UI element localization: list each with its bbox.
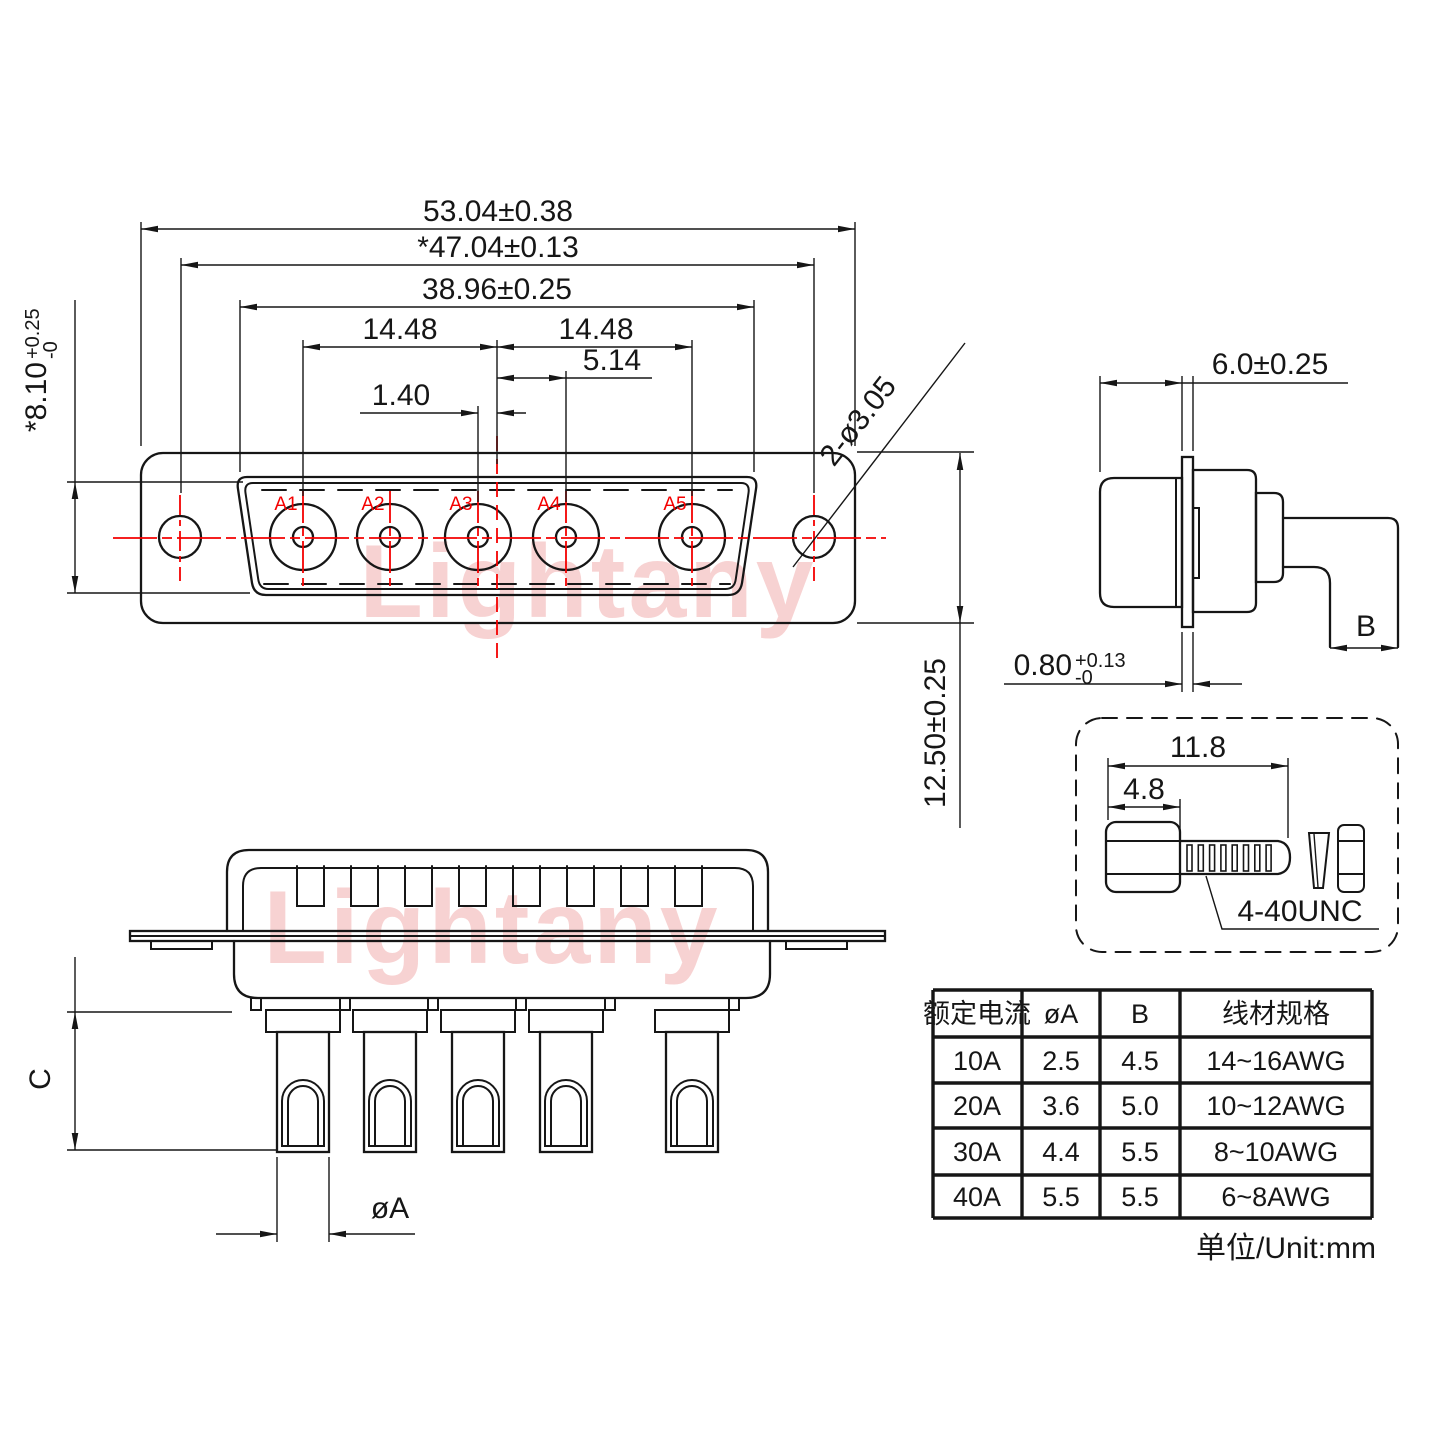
dim-pitch-left: 14.48 [362,313,437,346]
svg-text:40A: 40A [953,1182,1001,1212]
dim-shell-width: 38.96±0.25 [422,273,572,306]
thumbscrew-shaft [1180,841,1290,874]
side-mounting-plate [1182,457,1193,627]
svg-text:20A: 20A [953,1091,1001,1121]
pin-label-a2: A2 [361,494,384,515]
solder-cup-pins [277,1032,718,1152]
svg-text:14~16AWG: 14~16AWG [1206,1046,1345,1076]
spec-table: 额定电流 øA B 线材规格 10A 2.5 4.5 14~16AWG 20A … [923,990,1376,1265]
side-back-body [1193,470,1256,612]
dim-pin-length: C [24,957,277,1150]
connector-drawing-canvas: Lightany Lightany [0,0,1440,1440]
side-wire-outer [1283,518,1398,647]
dim-a3-offset: 1.40 [372,379,430,412]
front-view: A1 A2 A3 A4 A5 53.04±0.38 *47.04±0.13 38… [20,195,974,828]
dim-mount-holes: 2-ø3.05 [813,370,903,472]
body-pegs [251,998,739,1010]
svg-text:4.5: 4.5 [1121,1046,1159,1076]
dim-overall-width: 53.04±0.38 [423,195,573,228]
header-wire-gauge: 线材规格 [1222,999,1330,1029]
dim-hole-span: *47.04±0.13 [417,231,579,264]
svg-text:*8.10: *8.10 [20,362,53,432]
thread-lines [1187,845,1271,871]
header-rated-current: 额定电流 [923,999,1031,1029]
dim-screw-total: 11.8 [1170,731,1226,764]
engineering-drawing-page: Lightany Lightany [0,0,1440,1440]
svg-text:30A: 30A [953,1137,1001,1167]
table-header-row: 额定电流 øA B 线材规格 [923,999,1330,1029]
pin-label-a4: A4 [537,494,561,515]
front-dimensions: 53.04±0.38 *47.04±0.13 38.96±0.25 14.48 … [20,195,965,828]
header-b: B [1131,999,1149,1029]
pin-shoulders [266,1010,729,1032]
wedge-part [1309,833,1329,888]
dim-pin-diameter: øA [216,1157,415,1242]
dim-plate-thickness: 0.80 +0.13 -0 [1014,649,1126,689]
svg-text:5.0: 5.0 [1121,1091,1159,1121]
side-extension-lines [1100,376,1193,692]
thumbscrew-head [1106,822,1180,892]
pin-label-a3: A3 [449,494,472,515]
svg-text:5.5: 5.5 [1121,1137,1159,1167]
side-view: 6.0±0.25 0.80 +0.13 -0 B [1004,348,1398,692]
svg-text:øA: øA [371,1192,409,1225]
dim-shell-height: *8.10 +0.25 -0 [20,308,62,432]
svg-text:6~8AWG: 6~8AWG [1221,1182,1330,1212]
table-row: 30A 4.4 5.5 8~10AWG [953,1137,1338,1167]
nut-part [1338,825,1364,892]
side-wire-inner [1283,567,1330,647]
table-row: 10A 2.5 4.5 14~16AWG [953,1046,1346,1076]
dim-tail-b: B [1356,610,1376,643]
side-front-cap [1100,478,1182,607]
dim-screw-head: 4.8 [1123,773,1165,806]
table-row: 20A 3.6 5.0 10~12AWG [953,1091,1346,1121]
svg-text:5.5: 5.5 [1042,1182,1080,1212]
dim-front-depth: 6.0±0.25 [1212,348,1329,381]
side-back-step [1256,493,1283,582]
dim-flange-height: 12.50±0.25 [919,658,952,808]
svg-text:8~10AWG: 8~10AWG [1214,1137,1338,1167]
svg-text:4.4: 4.4 [1042,1137,1080,1167]
header-dia-a: øA [1044,999,1079,1029]
svg-text:10A: 10A [953,1046,1001,1076]
svg-text:10~12AWG: 10~12AWG [1206,1091,1345,1121]
svg-text:3.6: 3.6 [1042,1091,1080,1121]
dim-a4-offset: 5.14 [583,344,641,377]
dim-pitch-right: 14.48 [558,313,633,346]
screw-detail: 11.8 4.8 4-40UNC [1076,718,1398,952]
svg-text:5.5: 5.5 [1121,1182,1159,1212]
svg-text:-0: -0 [1075,667,1093,689]
thread-spec-label: 4-40UNC [1237,895,1362,928]
unit-note: 单位/Unit:mm [1196,1232,1376,1265]
table-row: 40A 5.5 5.5 6~8AWG [953,1182,1331,1212]
plate-tab-right [786,941,847,949]
svg-text:-0: -0 [40,341,62,359]
svg-text:C: C [24,1068,57,1090]
pin-label-a5: A5 [663,494,686,515]
watermark-bottom: Lightany [263,870,720,986]
pin-label-a1: A1 [274,494,297,515]
plate-tab-left [151,941,212,949]
svg-text:2.5: 2.5 [1042,1046,1080,1076]
svg-text:0.80: 0.80 [1014,649,1072,682]
